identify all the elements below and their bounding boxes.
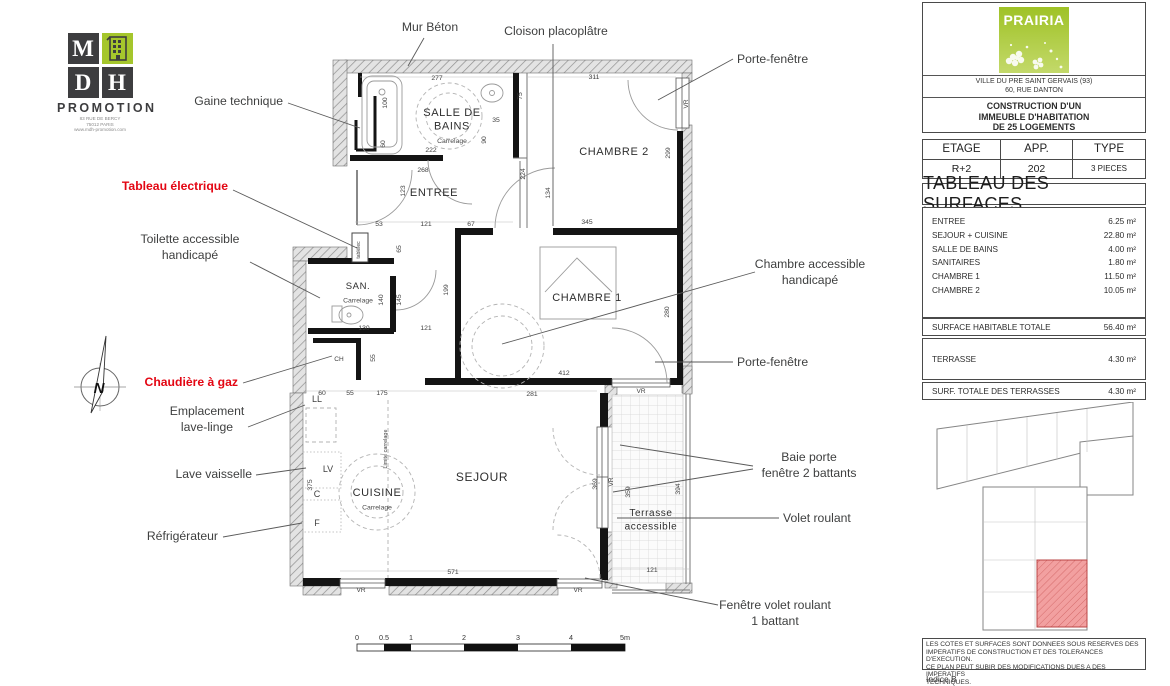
misc-label: Limite carrelage — [383, 429, 389, 468]
room-label-chambre-2: CHAMBRE 2 — [579, 146, 649, 158]
terrace-total-value: 4.30 m² — [1108, 387, 1136, 396]
dimension-label: 55 — [346, 390, 354, 397]
surface-row-value: 1.80 m² — [1108, 256, 1136, 270]
dimension-label: 145 — [396, 294, 403, 306]
dimension-label: 175 — [376, 390, 388, 397]
project-address: VILLE DU PRE SAINT GERVAIS (93) 60, RUE … — [923, 75, 1145, 95]
annotation-gaine-technique: Gaine technique — [194, 94, 283, 108]
room-label-salle-de-bains: SALLE DE — [423, 107, 480, 119]
compass-letter: N — [94, 380, 106, 397]
surface-table-title: TABLEAU DES SURFACES — [922, 183, 1146, 205]
misc-label: F — [314, 518, 320, 528]
annotation-fenetre-volet-roulant: Fenêtre volet roulant — [719, 598, 831, 612]
annotation-chaudiere-gaz: Chaudière à gaz — [145, 375, 238, 389]
revision-index: Indice B — [926, 674, 957, 684]
dimension-label: 394 — [675, 483, 682, 495]
window-label: VR — [573, 587, 582, 594]
dimension-label: 369 — [592, 478, 599, 490]
dimension-label: 121 — [420, 325, 432, 332]
surface-row-label: CHAMBRE 2 — [932, 284, 980, 298]
surface-row-value: 10.05 m² — [1104, 284, 1136, 298]
dimension-label: 281 — [526, 391, 538, 398]
apartment-floor-plan: SALLE DEBAINSCarrelageENTREECHAMBRE 2CHA… — [0, 0, 922, 686]
surface-row: CHAMBRE 111.50 m² — [932, 270, 1136, 284]
prairia-brand: PRAIRIA — [999, 12, 1069, 28]
scale-bar — [357, 644, 625, 651]
annotation-toilette-accessible: Toilette accessible — [141, 232, 240, 246]
room-label-chambre-1: CHAMBRE 1 — [552, 292, 622, 304]
title-block: PRAIRIA VILLE DU PRE SAINT GERVAIS (93) … — [922, 2, 1148, 686]
dimension-label: 359 — [625, 486, 632, 498]
scale-label: 1 — [409, 633, 413, 642]
dimension-label: 65 — [396, 245, 403, 253]
surface-row-value: 6.25 m² — [1108, 215, 1136, 229]
compass-letter: N — [94, 380, 106, 397]
dimension-label: 268 — [417, 167, 429, 174]
dimension-label: 140 — [378, 294, 385, 306]
surface-row-label: ENTREE — [932, 215, 965, 229]
misc-label: C — [314, 489, 321, 499]
dimension-label: 121 — [420, 221, 432, 228]
scale-label: 3 — [516, 633, 520, 642]
room-label-salle-de-bains: BAINS — [434, 121, 470, 133]
scale-label: 0.5 — [379, 633, 389, 642]
bed — [540, 247, 616, 319]
terrace-label: TERRASSE — [932, 355, 976, 364]
notes-line: CE PLAN PEUT SUBIR DES MODIFICATIONS DUE… — [926, 664, 1142, 679]
misc-label: tablélec — [356, 241, 362, 259]
dimension-label: 199 — [443, 284, 450, 296]
floor-plan-sheet: M D H PROMOTION — [0, 0, 1170, 686]
annotation-lave-vaisselle: Lave vaisselle — [175, 467, 252, 481]
fridge-slot — [303, 500, 341, 532]
surface-total-row: SURFACE HABITABLE TOTALE 56.40 m² — [922, 318, 1146, 336]
surface-row: SANITAIRES1.80 m² — [932, 256, 1136, 270]
annotation-emplacement-lave-linge: lave-linge — [181, 420, 233, 434]
dimension-label: 100 — [382, 97, 389, 109]
terrace-row: TERRASSE 4.30 m² — [922, 338, 1146, 380]
dimension-label: 412 — [558, 370, 570, 377]
terrace-total-row: SURF. TOTALE DES TERRASSES 4.30 m² — [922, 382, 1146, 400]
project-street: 60, RUE DANTON — [923, 87, 1145, 96]
annotation-baie-porte-fenetre: Baie porte — [781, 450, 837, 464]
notes-line: TECHNIQUES. — [926, 679, 1142, 686]
dimension-label: 311 — [589, 74, 600, 81]
room-label-entree: ENTREE — [410, 187, 458, 199]
notes-line: LES COTES ET SURFACES SONT DONNEES SOUS … — [926, 641, 1142, 649]
project-header-box: PRAIRIA VILLE DU PRE SAINT GERVAIS (93) … — [922, 2, 1146, 133]
dimension-label: 345 — [581, 219, 593, 226]
room-sublabel: Carrelage — [343, 298, 373, 305]
dimension-label: 60 — [380, 140, 387, 148]
dimension-label: 222 — [425, 147, 437, 154]
surface-row-value: 11.50 m² — [1104, 270, 1136, 284]
project-city: VILLE DU PRE SAINT GERVAIS (93) — [923, 78, 1145, 87]
room-label-sejour: SEJOUR — [456, 470, 508, 484]
surface-row-value: 4.00 m² — [1108, 243, 1136, 257]
surface-row: CHAMBRE 210.05 m² — [932, 284, 1136, 298]
prairia-logo: PRAIRIA — [999, 7, 1069, 73]
scale-label: 4 — [569, 633, 573, 642]
dimension-label: 35 — [492, 117, 500, 124]
surface-row-label: SALLE DE BAINS — [932, 243, 998, 257]
terrace-total-label: SURF. TOTALE DES TERRASSES — [932, 387, 1060, 396]
unit-header-app: APP. — [1001, 140, 1073, 160]
surface-row: SALLE DE BAINS4.00 m² — [932, 243, 1136, 257]
flower — [1006, 51, 1024, 66]
window-label: VR — [683, 99, 690, 108]
north-compass-icon — [74, 336, 126, 413]
room-label-terrasse: Terrasse — [629, 508, 672, 519]
surface-row-label: SANITAIRES — [932, 256, 980, 270]
surface-row: SEJOUR + CUISINE22.80 m² — [932, 229, 1136, 243]
scale-labels: 00.512345m — [355, 633, 630, 642]
dimension-label: 280 — [664, 306, 671, 318]
annotation-volet-roulant: Volet roulant — [783, 511, 851, 525]
annotation-porte-fenetre-haut: Porte-fenêtre — [737, 52, 808, 66]
notes-line: IMPERATIFS DE CONSTRUCTION ET DES TOLERA… — [926, 649, 1142, 664]
room-sublabel: Carrelage — [437, 138, 467, 145]
leader-line — [233, 190, 357, 248]
annotation-chambre-accessible: Chambre accessible — [755, 257, 866, 271]
notes-box: LES COTES ET SURFACES SONT DONNEES SOUS … — [922, 638, 1146, 670]
surface-total-value: 56.40 m² — [1104, 323, 1136, 332]
dimension-label: 224 — [520, 168, 527, 180]
annotation-baie-porte-fenetre: fenêtre 2 battants — [762, 466, 857, 480]
annotation-mur-beton: Mur Béton — [402, 20, 458, 34]
project-description: CONSTRUCTION D'UN IMMEUBLE D'HABITATION … — [923, 97, 1145, 133]
scale-label: 5m — [620, 633, 630, 642]
terrace-value: 4.30 m² — [1108, 355, 1136, 364]
window-label: VR — [608, 477, 615, 486]
misc-label: LV — [323, 464, 333, 474]
room-label-terrasse: accessible — [625, 522, 678, 533]
dimension-label: 75 — [517, 92, 524, 100]
scale-label: 0 — [355, 633, 359, 642]
surface-table-rows: ENTREE6.25 m²SEJOUR + CUISINE22.80 m²SAL… — [922, 207, 1146, 318]
annotation-emplacement-lave-linge: Emplacement — [170, 404, 245, 418]
misc-label: CH — [334, 356, 344, 363]
annotation-cloison-placoplatre: Cloison placoplâtre — [504, 24, 608, 38]
unit-header-etage: ETAGE — [923, 140, 1001, 160]
key-plan-highlighted-unit — [1037, 560, 1087, 627]
dimension-label: 277 — [431, 75, 443, 82]
leader-line — [250, 262, 320, 298]
scale-label: 2 — [462, 633, 466, 642]
surface-row-label: SEJOUR + CUISINE — [932, 229, 1008, 243]
window-label: VR — [356, 587, 365, 594]
room-label-san: SAN. — [346, 281, 371, 292]
dimension-label: 67 — [467, 221, 475, 228]
surface-row: ENTREE6.25 m² — [932, 215, 1136, 229]
dimension-label: 53 — [375, 221, 383, 228]
dimension-label: 90 — [481, 136, 488, 144]
annotation-refrigerateur: Réfrigérateur — [147, 529, 218, 543]
leader-line — [288, 103, 360, 128]
surface-total-label: SURFACE HABITABLE TOTALE — [932, 323, 1051, 332]
annotation-labels: Mur BétonCloison placoplâtrePorte-fenêtr… — [122, 20, 866, 628]
unit-header-type: TYPE — [1073, 140, 1145, 160]
misc-label: LL — [312, 394, 322, 404]
turning-circle — [460, 304, 544, 388]
window-label: VR — [636, 388, 645, 395]
room-label-cuisine: CUISINE — [353, 487, 402, 499]
leader-line — [243, 356, 332, 383]
dimension-label: 571 — [447, 569, 459, 576]
dimension-label: 299 — [665, 147, 672, 159]
surface-row-value: 22.80 m² — [1104, 229, 1136, 243]
flower — [1033, 58, 1044, 70]
room-sublabel: Carrelage — [362, 505, 392, 512]
dimension-label: 121 — [646, 567, 658, 574]
dimension-label: 123 — [400, 185, 407, 197]
bathroom-sink — [481, 84, 503, 102]
annotation-porte-fenetre-droit: Porte-fenêtre — [737, 355, 808, 369]
dimension-label: 134 — [545, 187, 552, 199]
dimension-label: 55 — [370, 354, 377, 362]
key-plan — [922, 402, 1148, 634]
dimension-label: 130 — [358, 325, 370, 332]
annotation-fenetre-volet-roulant: 1 battant — [751, 614, 799, 628]
annotation-chambre-accessible: handicapé — [782, 273, 838, 287]
washing-machine-slot — [306, 408, 336, 442]
surface-row-label: CHAMBRE 1 — [932, 270, 980, 284]
annotation-toilette-accessible: handicapé — [162, 248, 218, 262]
annotation-tableau-electrique: Tableau électrique — [122, 179, 228, 193]
